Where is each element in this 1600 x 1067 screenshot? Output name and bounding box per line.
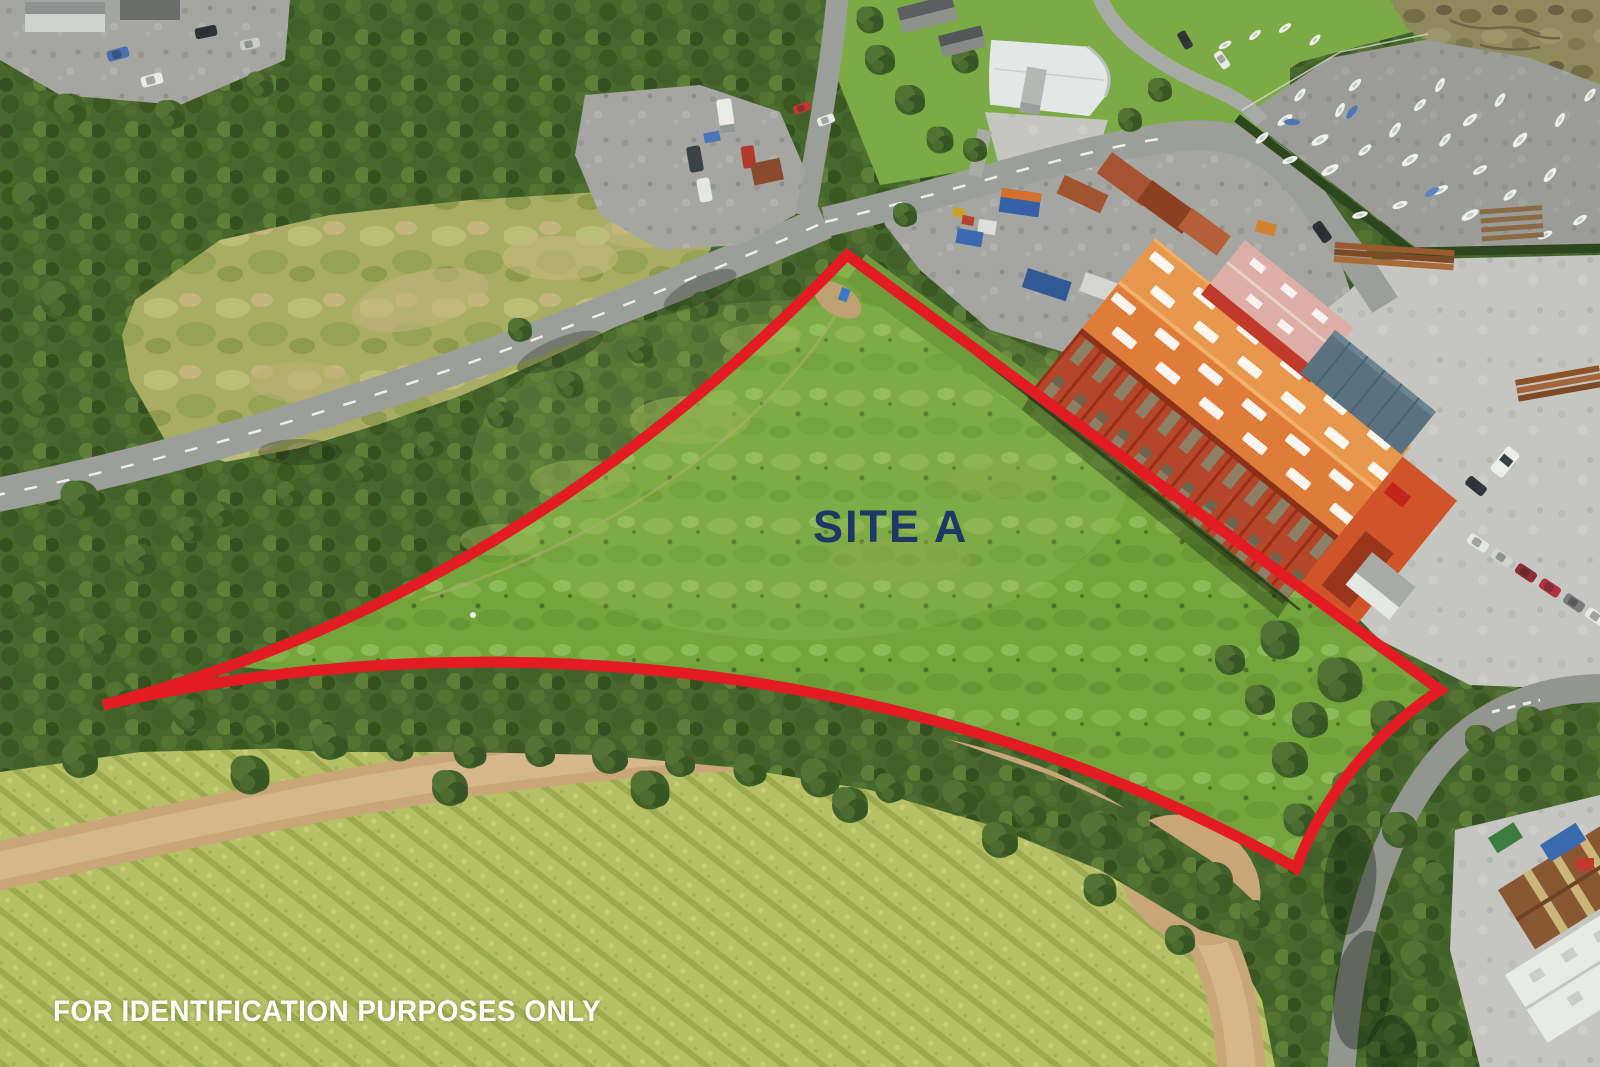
aerial-photo-canvas bbox=[0, 0, 1600, 1067]
tree-canopy-blob bbox=[247, 72, 274, 99]
red-machine bbox=[1576, 858, 1594, 870]
field-debris bbox=[470, 612, 476, 618]
tree-canopy-blob bbox=[54, 94, 87, 127]
aerial-photo: SITE A FOR IDENTIFICATION PURPOSES ONLY bbox=[0, 0, 1600, 1067]
tree-canopy-blob bbox=[155, 100, 185, 130]
